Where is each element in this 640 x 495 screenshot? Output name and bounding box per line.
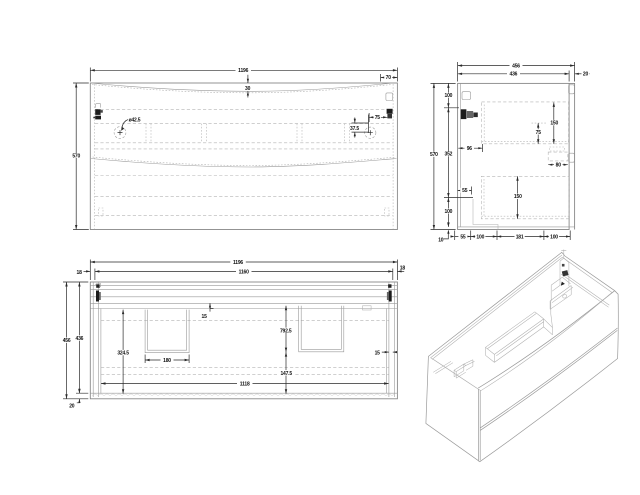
svg-text:18: 18	[400, 266, 406, 272]
svg-text:352: 352	[445, 152, 453, 158]
svg-text:456: 456	[63, 338, 71, 344]
svg-text:324.5: 324.5	[117, 351, 129, 357]
svg-text:55: 55	[462, 188, 468, 194]
svg-text:100: 100	[445, 209, 453, 215]
svg-text:18: 18	[77, 270, 83, 276]
svg-text:ø42.5: ø42.5	[129, 118, 141, 124]
svg-text:1196: 1196	[233, 260, 243, 266]
svg-text:1118: 1118	[240, 382, 250, 388]
svg-text:456: 456	[512, 63, 520, 69]
svg-text:70: 70	[386, 75, 392, 81]
svg-text:150: 150	[550, 121, 558, 127]
svg-text:436: 436	[76, 336, 84, 342]
svg-text:80: 80	[556, 163, 562, 169]
svg-text:436: 436	[510, 72, 518, 78]
svg-text:75: 75	[536, 130, 542, 136]
svg-text:100: 100	[445, 93, 453, 99]
svg-text:570: 570	[430, 152, 438, 158]
svg-text:1196: 1196	[238, 68, 248, 74]
svg-text:181: 181	[516, 234, 524, 240]
svg-text:15: 15	[375, 350, 381, 356]
svg-text:100: 100	[550, 234, 558, 240]
svg-text:180: 180	[163, 358, 171, 364]
svg-text:55: 55	[460, 234, 466, 240]
svg-text:570: 570	[72, 153, 80, 159]
svg-text:20: 20	[69, 404, 75, 410]
svg-text:15: 15	[202, 314, 208, 320]
svg-text:1160: 1160	[239, 269, 249, 275]
svg-text:150: 150	[514, 194, 522, 200]
svg-text:147.5: 147.5	[280, 371, 292, 377]
svg-text:20: 20	[583, 71, 589, 77]
svg-text:10: 10	[438, 238, 444, 244]
svg-text:96: 96	[467, 146, 473, 152]
svg-text:30: 30	[245, 86, 251, 92]
svg-text:792.5: 792.5	[280, 328, 292, 334]
svg-text:75: 75	[375, 115, 381, 121]
svg-text:37.5: 37.5	[350, 126, 359, 132]
svg-text:100: 100	[476, 234, 484, 240]
